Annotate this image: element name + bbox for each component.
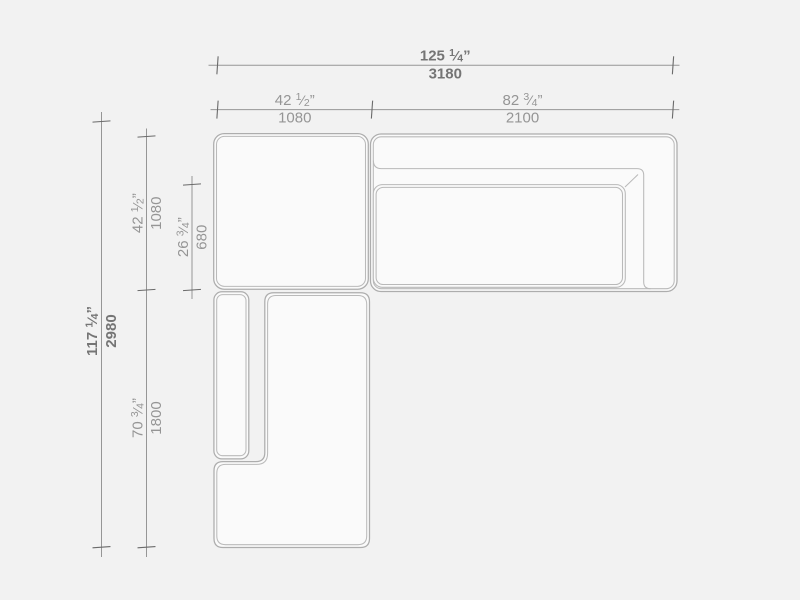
svg-text:1080: 1080 — [148, 197, 165, 230]
svg-text:680: 680 — [194, 225, 211, 250]
svg-text:1800: 1800 — [148, 401, 165, 434]
svg-text:125 1⁄4”: 125 1⁄4” — [420, 47, 471, 65]
svg-text:26 3⁄4”: 26 3⁄4” — [174, 217, 192, 257]
svg-text:82 3⁄4”: 82 3⁄4” — [503, 91, 543, 109]
svg-text:2100: 2100 — [506, 110, 539, 127]
svg-text:42 1⁄2”: 42 1⁄2” — [275, 91, 315, 109]
svg-text:1080: 1080 — [278, 110, 311, 127]
svg-text:3180: 3180 — [429, 66, 462, 83]
svg-text:70 3⁄4”: 70 3⁄4” — [129, 398, 147, 438]
svg-text:117 1⁄4”: 117 1⁄4” — [83, 306, 101, 356]
svg-text:42 1⁄2”: 42 1⁄2” — [129, 193, 147, 233]
svg-text:2980: 2980 — [103, 314, 120, 347]
